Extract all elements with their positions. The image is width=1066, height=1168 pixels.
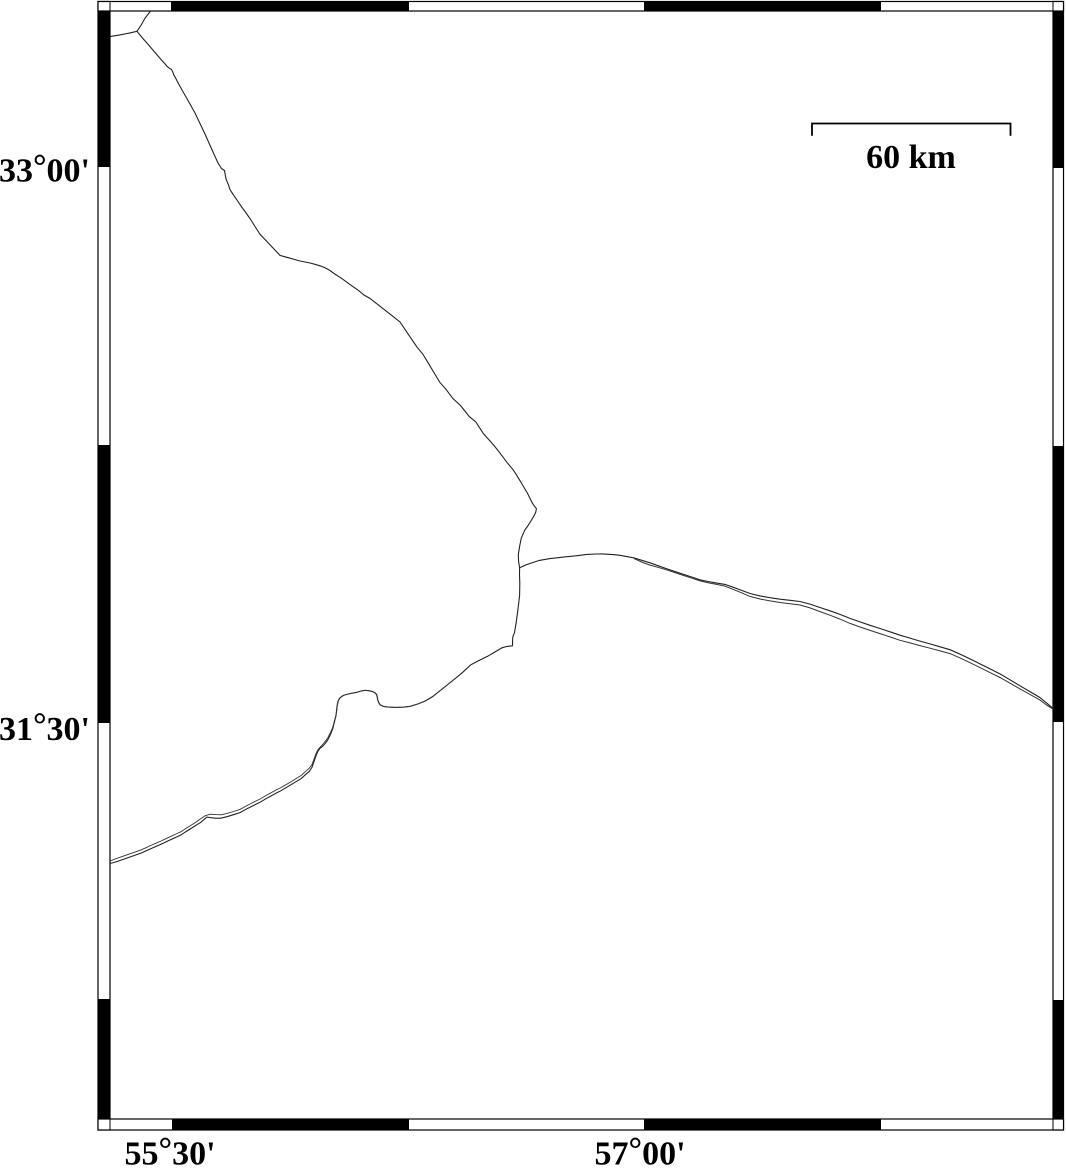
svg-text:57°00': 57°00' [594, 1131, 685, 1168]
svg-text:60 km: 60 km [866, 139, 956, 176]
svg-text:55°30': 55°30' [124, 1131, 215, 1168]
svg-text:33°00': 33°00' [0, 148, 90, 189]
svg-text:31°30': 31°30' [0, 707, 90, 748]
